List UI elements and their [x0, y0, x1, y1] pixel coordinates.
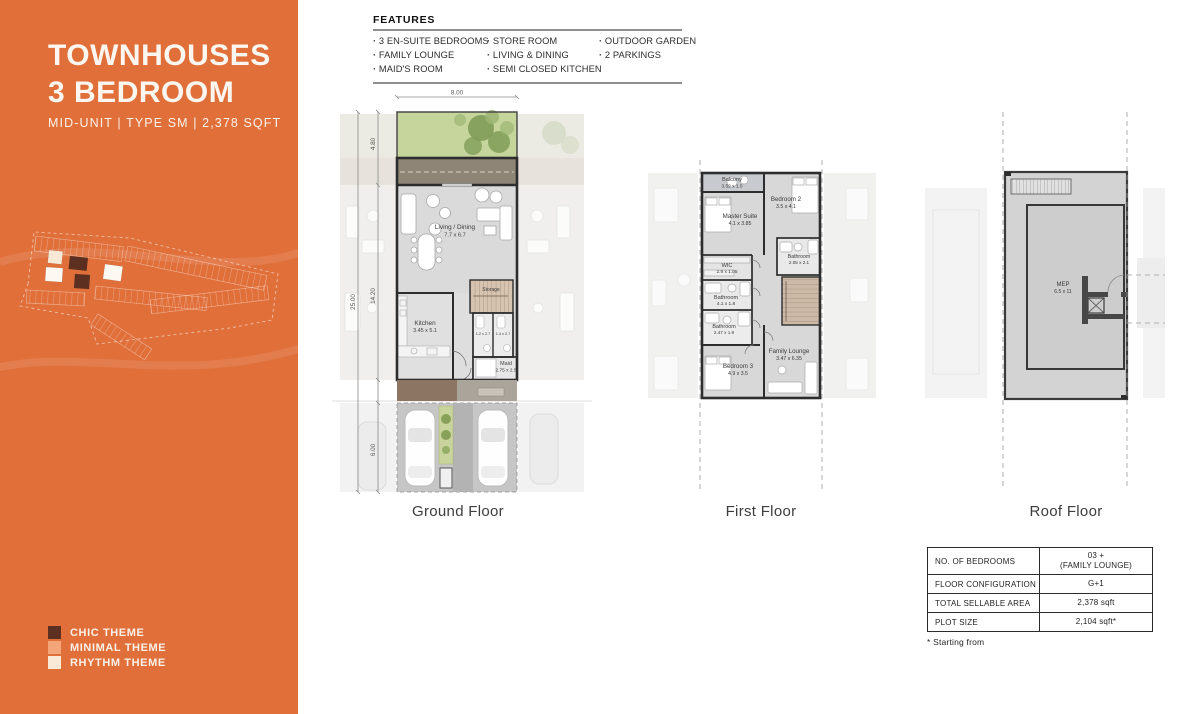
bedroom3-size: 4.9 x 3.5	[728, 371, 748, 377]
balcony-label: Balcony	[722, 177, 742, 183]
wic-size: 2.9 x 1.05	[716, 269, 737, 275]
mep-size: 6.5 x 11	[1054, 289, 1072, 295]
family-lounge-label: Family Lounge	[769, 348, 810, 355]
family-lounge-size: 3.47 x 6.35	[776, 356, 802, 362]
bedroom2-size: 3.5 x 4.1	[776, 204, 796, 210]
kitchen-label: Kitchen	[414, 320, 436, 327]
planter	[439, 406, 453, 464]
rhythm-theme-swatch	[48, 656, 61, 669]
feature-item: LIVING & DINING	[487, 49, 599, 63]
driveway	[397, 403, 517, 492]
features-column-1: 3 EN-SUITE BEDROOMS FAMILY LOUNGE MAID'S…	[373, 35, 487, 77]
theme-row-minimal: MINIMAL THEME	[48, 641, 166, 654]
dim-total: 25.00	[350, 294, 357, 310]
maid-label: Maid	[500, 361, 512, 367]
spec-label-sellable-area: TOTAL SELLABLE AREA	[928, 594, 1040, 612]
unit-subtitle: MID-UNIT | TYPE SM | 2,378 SQFT	[48, 116, 281, 130]
ground-floor-plan: 8.00 25.00 4.80 14.20 6.00 Living / Dini…	[332, 88, 592, 498]
wic-label: WIC	[722, 263, 733, 269]
features-list: 3 EN-SUITE BEDROOMS FAMILY LOUNGE MAID'S…	[373, 29, 682, 84]
table-row: PLOT SIZE 2,104 sqft*	[928, 612, 1152, 631]
garden-area	[397, 110, 517, 158]
page-title-line2: 3 BEDROOM	[48, 76, 234, 109]
chic-theme-label: CHIC THEME	[70, 627, 144, 639]
roof-floor-plan: MEP 6.5 x 11	[925, 108, 1165, 498]
car-icon	[478, 410, 508, 486]
spec-value-line1: 03 +	[1088, 551, 1105, 561]
feature-item: FAMILY LOUNGE	[373, 49, 487, 63]
feature-item: STORE ROOM	[487, 35, 599, 49]
table-row: NO. OF BEDROOMS 03 + (FAMILY LOUNGE)	[928, 548, 1152, 574]
spec-value-line2: (FAMILY LOUNGE)	[1060, 561, 1132, 571]
bath-ensuite-size: 2.05 x 2.1	[789, 260, 810, 265]
kitchen-size: 3.45 x 5.1	[413, 328, 437, 334]
wc2-size: 1.4 x 2.7	[496, 332, 511, 336]
theme-row-rhythm: RHYTHM THEME	[48, 656, 166, 669]
room-labels: MEP 6.5 x 11	[1054, 282, 1072, 295]
page-title: TOWNHOUSES3 BEDROOM	[48, 38, 271, 112]
spec-value-bedrooms: 03 + (FAMILY LOUNGE)	[1040, 548, 1152, 574]
features-column-2: STORE ROOM LIVING & DINING SEMI CLOSED K…	[487, 35, 599, 77]
living-room-label: Living / Dining	[435, 224, 476, 231]
house-interior	[397, 185, 517, 380]
feature-item: SEMI CLOSED KITCHEN	[487, 63, 599, 77]
car-icon	[405, 410, 435, 486]
bath-master-size: 4.1 x 1.8	[717, 301, 736, 307]
bath-master-label: Bathroom	[714, 295, 739, 301]
spec-value-floor-config: G+1	[1040, 575, 1152, 593]
page-title-line1: TOWNHOUSES	[48, 39, 271, 72]
bedroom3-label: Bedroom 3	[723, 363, 754, 370]
dim-garden: 4.80	[370, 137, 377, 150]
table-row: TOTAL SELLABLE AREA 2,378 sqft	[928, 593, 1152, 612]
dim-house: 14.20	[370, 288, 377, 304]
minimal-theme-swatch	[48, 641, 61, 654]
deck-area	[397, 158, 517, 185]
spec-value-plot-size: 2,104 sqft*	[1040, 613, 1152, 631]
dim-width: 8.00	[451, 90, 464, 97]
ground-floor-caption: Ground Floor	[397, 503, 519, 520]
features-title: FEATURES	[373, 14, 682, 26]
bath-shared-size: 2.47 x 1.9	[714, 330, 735, 335]
stairs-icon	[782, 277, 820, 325]
theme-row-chic: CHIC THEME	[48, 626, 166, 639]
table-footnote: * Starting from	[927, 637, 984, 647]
features-column-3: OUTDOOR GARDEN 2 PARKINGS	[599, 35, 682, 77]
master-suite-size: 4.1 x 3.85	[729, 221, 752, 227]
maid-furniture	[476, 359, 496, 377]
feature-item: MAID'S ROOM	[373, 63, 487, 77]
feature-item: 3 EN-SUITE BEDROOMS	[373, 35, 487, 49]
first-floor-caption: First Floor	[700, 503, 822, 520]
living-room-size: 7.7 x 6.7	[444, 233, 465, 239]
vent-grille-icon	[1011, 179, 1071, 194]
entrance-deck	[397, 380, 517, 401]
storage-label: Storage	[482, 287, 500, 293]
spec-value-sellable-area: 2,378 sqft	[1040, 594, 1152, 612]
feature-item: 2 PARKINGS	[599, 49, 682, 63]
master-suite-label: Master Suite	[723, 213, 758, 220]
brochure-page: TOWNHOUSES3 BEDROOM MID-UNIT | TYPE SM |…	[0, 0, 1200, 714]
site-map-graphic	[0, 222, 298, 402]
maid-size: 2.75 x 2.5	[495, 368, 516, 374]
feature-item: OUTDOOR GARDEN	[599, 35, 682, 49]
bedroom2-label: Bedroom 2	[771, 196, 802, 203]
stairs-icon	[470, 280, 513, 313]
roof-floor-caption: Roof Floor	[1004, 503, 1128, 520]
spec-table: NO. OF BEDROOMS 03 + (FAMILY LOUNGE) FLO…	[927, 547, 1153, 632]
spec-label-plot-size: PLOT SIZE	[928, 613, 1040, 631]
spec-label-bedrooms: NO. OF BEDROOMS	[928, 548, 1040, 574]
site-map-roads	[0, 252, 298, 372]
chic-theme-swatch	[48, 626, 61, 639]
wc1-size: 1.2 x 2.7	[476, 332, 491, 336]
table-row: FLOOR CONFIGURATION G+1	[928, 574, 1152, 593]
mep-label: MEP	[1056, 282, 1069, 288]
minimal-theme-label: MINIMAL THEME	[70, 642, 166, 654]
sidebar: TOWNHOUSES3 BEDROOM MID-UNIT | TYPE SM |…	[0, 0, 298, 714]
spec-label-floor-config: FLOOR CONFIGURATION	[928, 575, 1040, 593]
rhythm-theme-label: RHYTHM THEME	[70, 657, 166, 669]
features-panel: FEATURES 3 EN-SUITE BEDROOMS FAMILY LOUN…	[373, 14, 682, 84]
balcony-size: 3.52 x 1.5	[721, 184, 742, 190]
first-floor-plan: Balcony 3.52 x 1.5 Master Suite 4.1 x 3.…	[642, 160, 882, 498]
theme-legend: CHIC THEME MINIMAL THEME RHYTHM THEME	[48, 626, 166, 671]
dim-driveway: 6.00	[370, 443, 377, 456]
